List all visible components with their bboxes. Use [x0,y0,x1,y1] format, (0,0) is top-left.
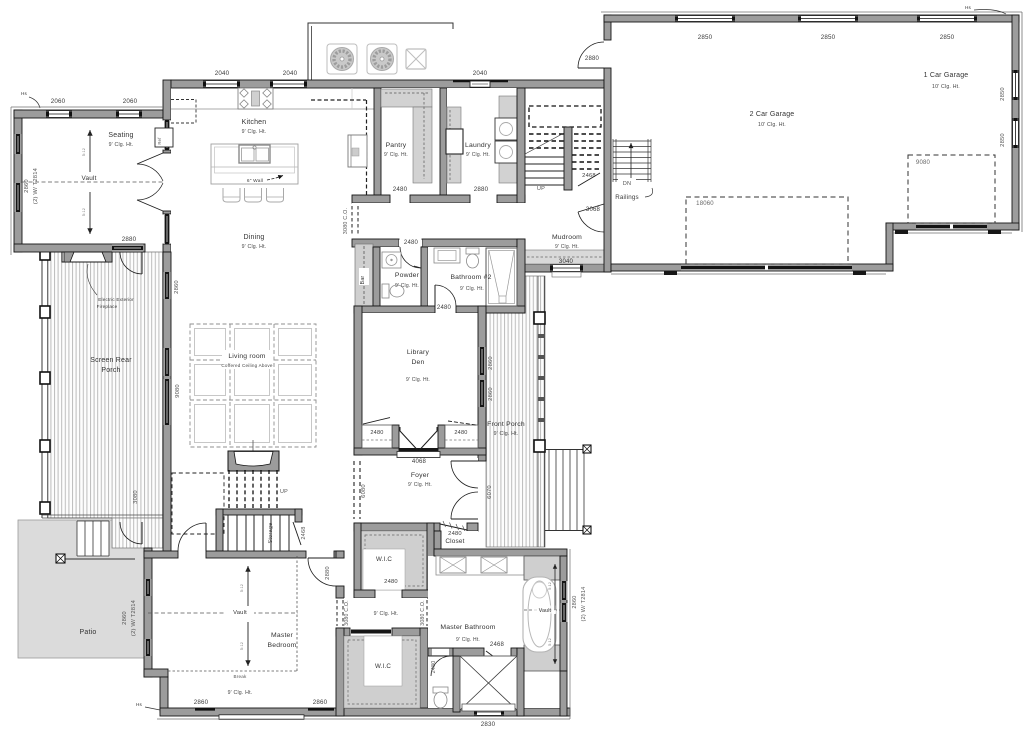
svg-text:9' Clg. Ht.: 9' Clg. Ht. [456,637,480,643]
svg-text:Laundry: Laundry [465,142,491,149]
svg-text:2880: 2880 [585,56,600,62]
svg-text:Vault: Vault [539,608,552,614]
svg-text:Vault: Vault [81,175,96,182]
svg-text:9080: 9080 [175,384,181,398]
svg-text:2850: 2850 [1000,87,1006,101]
svg-text:2480: 2480 [404,240,419,246]
svg-text:Vault: Vault [233,610,247,616]
svg-text:Coffered Ceiling Above: Coffered Ceiling Above [221,363,273,368]
svg-text:9' Clg. Ht.: 9' Clg. Ht. [242,129,267,135]
svg-text:2850: 2850 [1000,133,1006,147]
svg-text:Closet: Closet [445,538,464,545]
svg-text:3080 C.O.: 3080 C.O. [420,600,426,625]
svg-text:18060: 18060 [696,201,714,207]
svg-text:Front Porch: Front Porch [487,421,525,428]
svg-text:Railings: Railings [615,194,639,201]
svg-text:(2) W/ T2814: (2) W/ T2814 [33,167,39,204]
svg-text:2060: 2060 [51,98,66,105]
svg-text:5:12: 5:12 [82,148,86,156]
svg-text:2040: 2040 [283,70,298,77]
svg-text:2860: 2860 [488,356,494,370]
svg-text:2860: 2860 [174,280,180,294]
svg-text:2040: 2040 [473,70,488,77]
svg-text:W.I.C: W.I.C [375,663,391,670]
svg-text:2860: 2860 [572,595,578,608]
svg-text:Hs: Hs [136,702,143,707]
svg-text:Living room: Living room [228,353,265,360]
svg-text:2880: 2880 [325,566,331,580]
svg-text:Foyer: Foyer [411,472,430,479]
svg-text:(2) W/ T2814: (2) W/ T2814 [131,599,137,636]
svg-text:Hs: Hs [21,91,28,96]
svg-text:2880: 2880 [474,186,489,193]
svg-text:2480: 2480 [384,579,398,585]
svg-text:2468: 2468 [301,526,307,539]
svg-text:Seating: Seating [108,132,133,139]
svg-text:UP: UP [280,489,288,495]
svg-text:2040: 2040 [215,70,230,77]
svg-text:2850: 2850 [821,34,836,41]
svg-text:2850: 2850 [940,34,955,41]
svg-text:2480: 2480 [370,430,383,436]
svg-text:2480: 2480 [393,186,408,193]
svg-text:2480: 2480 [437,305,452,311]
svg-text:UP: UP [537,186,545,192]
svg-text:9' Clg. Ht.: 9' Clg. Ht. [494,431,519,437]
svg-text:6070: 6070 [487,485,493,499]
svg-text:4068: 4068 [412,459,427,465]
svg-text:3068: 3068 [586,207,601,213]
svg-text:2860: 2860 [24,179,30,193]
svg-text:2480: 2480 [448,531,462,537]
svg-text:Dining: Dining [243,234,264,241]
svg-text:Bedroom: Bedroom [268,642,297,649]
svg-text:Storage: Storage [268,523,274,544]
svg-text:Mudroom: Mudroom [552,234,582,241]
svg-text:Bar: Bar [360,276,366,285]
svg-text:9' Clg. Ht.: 9' Clg. Ht. [466,152,490,158]
svg-text:9' Clg. Ht.: 9' Clg. Ht. [242,244,267,250]
svg-text:10' Clg. Ht.: 10' Clg. Ht. [932,84,960,90]
svg-text:3040: 3040 [559,259,574,265]
svg-text:Kitchen: Kitchen [242,119,267,126]
svg-text:2480: 2480 [454,430,467,436]
svg-text:Bathroom #2: Bathroom #2 [450,274,491,281]
svg-text:Hs: Hs [965,5,972,10]
svg-text:Electric Exterior: Electric Exterior [98,297,134,302]
svg-text:2468: 2468 [582,173,596,179]
svg-text:9' Clg. Ht.: 9' Clg. Ht. [406,377,430,383]
svg-text:Powder: Powder [395,272,420,279]
svg-text:9' Clg. Ht.: 9' Clg. Ht. [408,482,432,488]
svg-text:6080: 6080 [361,484,367,498]
svg-text:9' Clg. Ht.: 9' Clg. Ht. [228,690,253,696]
svg-text:3080 C.O.: 3080 C.O. [343,208,349,234]
svg-text:DN: DN [623,181,631,187]
svg-text:1 Car Garage: 1 Car Garage [924,72,969,79]
svg-text:2 Car Garage: 2 Car Garage [750,111,795,118]
svg-text:2830: 2830 [481,721,496,728]
svg-text:2860: 2860 [313,699,328,706]
svg-text:10' Clg. Ht.: 10' Clg. Ht. [758,122,786,128]
svg-text:5:12: 5:12 [240,642,244,650]
svg-text:9' Clg. Ht.: 9' Clg. Ht. [395,283,419,289]
svg-text:9' Clg. Ht.: 9' Clg. Ht. [109,142,134,148]
svg-text:3080: 3080 [133,490,139,504]
svg-text:Master: Master [271,632,294,639]
svg-text:Break: Break [233,674,247,679]
svg-text:Master Bathroom: Master Bathroom [440,624,495,631]
svg-text:2880: 2880 [122,236,137,243]
svg-text:Porch: Porch [101,367,120,374]
svg-text:2060: 2060 [123,98,138,105]
svg-text:9' Clg. Ht.: 9' Clg. Ht. [460,286,484,292]
svg-text:9' Clg. Ht.: 9' Clg. Ht. [555,244,579,250]
svg-text:2860: 2860 [122,611,128,625]
svg-text:5:12: 5:12 [548,638,552,646]
svg-text:9' Clg. Ht.: 9' Clg. Ht. [374,611,399,617]
svg-text:2860: 2860 [488,387,494,401]
svg-text:9' Clg. Ht.: 9' Clg. Ht. [384,152,408,158]
svg-text:3080 C.O.: 3080 C.O. [344,600,350,625]
svg-text:Pantry: Pantry [386,142,407,149]
svg-text:5:12: 5:12 [240,584,244,592]
svg-text:Den: Den [411,359,424,366]
svg-text:Ref: Ref [157,137,162,145]
svg-text:2480: 2480 [431,661,437,674]
svg-text:Screen Rear: Screen Rear [90,357,132,364]
svg-text:Fireplace: Fireplace [97,304,118,309]
svg-text:W.I.C: W.I.C [376,556,392,563]
svg-text:Library: Library [407,349,430,356]
svg-text:2468: 2468 [490,642,505,648]
svg-text:2850: 2850 [698,34,713,41]
svg-text:6" Wall: 6" Wall [247,178,263,184]
svg-text:Patio: Patio [80,629,97,636]
svg-text:(2) W/ T2814: (2) W/ T2814 [581,587,587,622]
svg-text:5:12: 5:12 [548,582,552,590]
svg-text:9080: 9080 [916,160,931,166]
svg-text:2860: 2860 [194,699,209,706]
svg-text:5:12: 5:12 [82,208,86,216]
